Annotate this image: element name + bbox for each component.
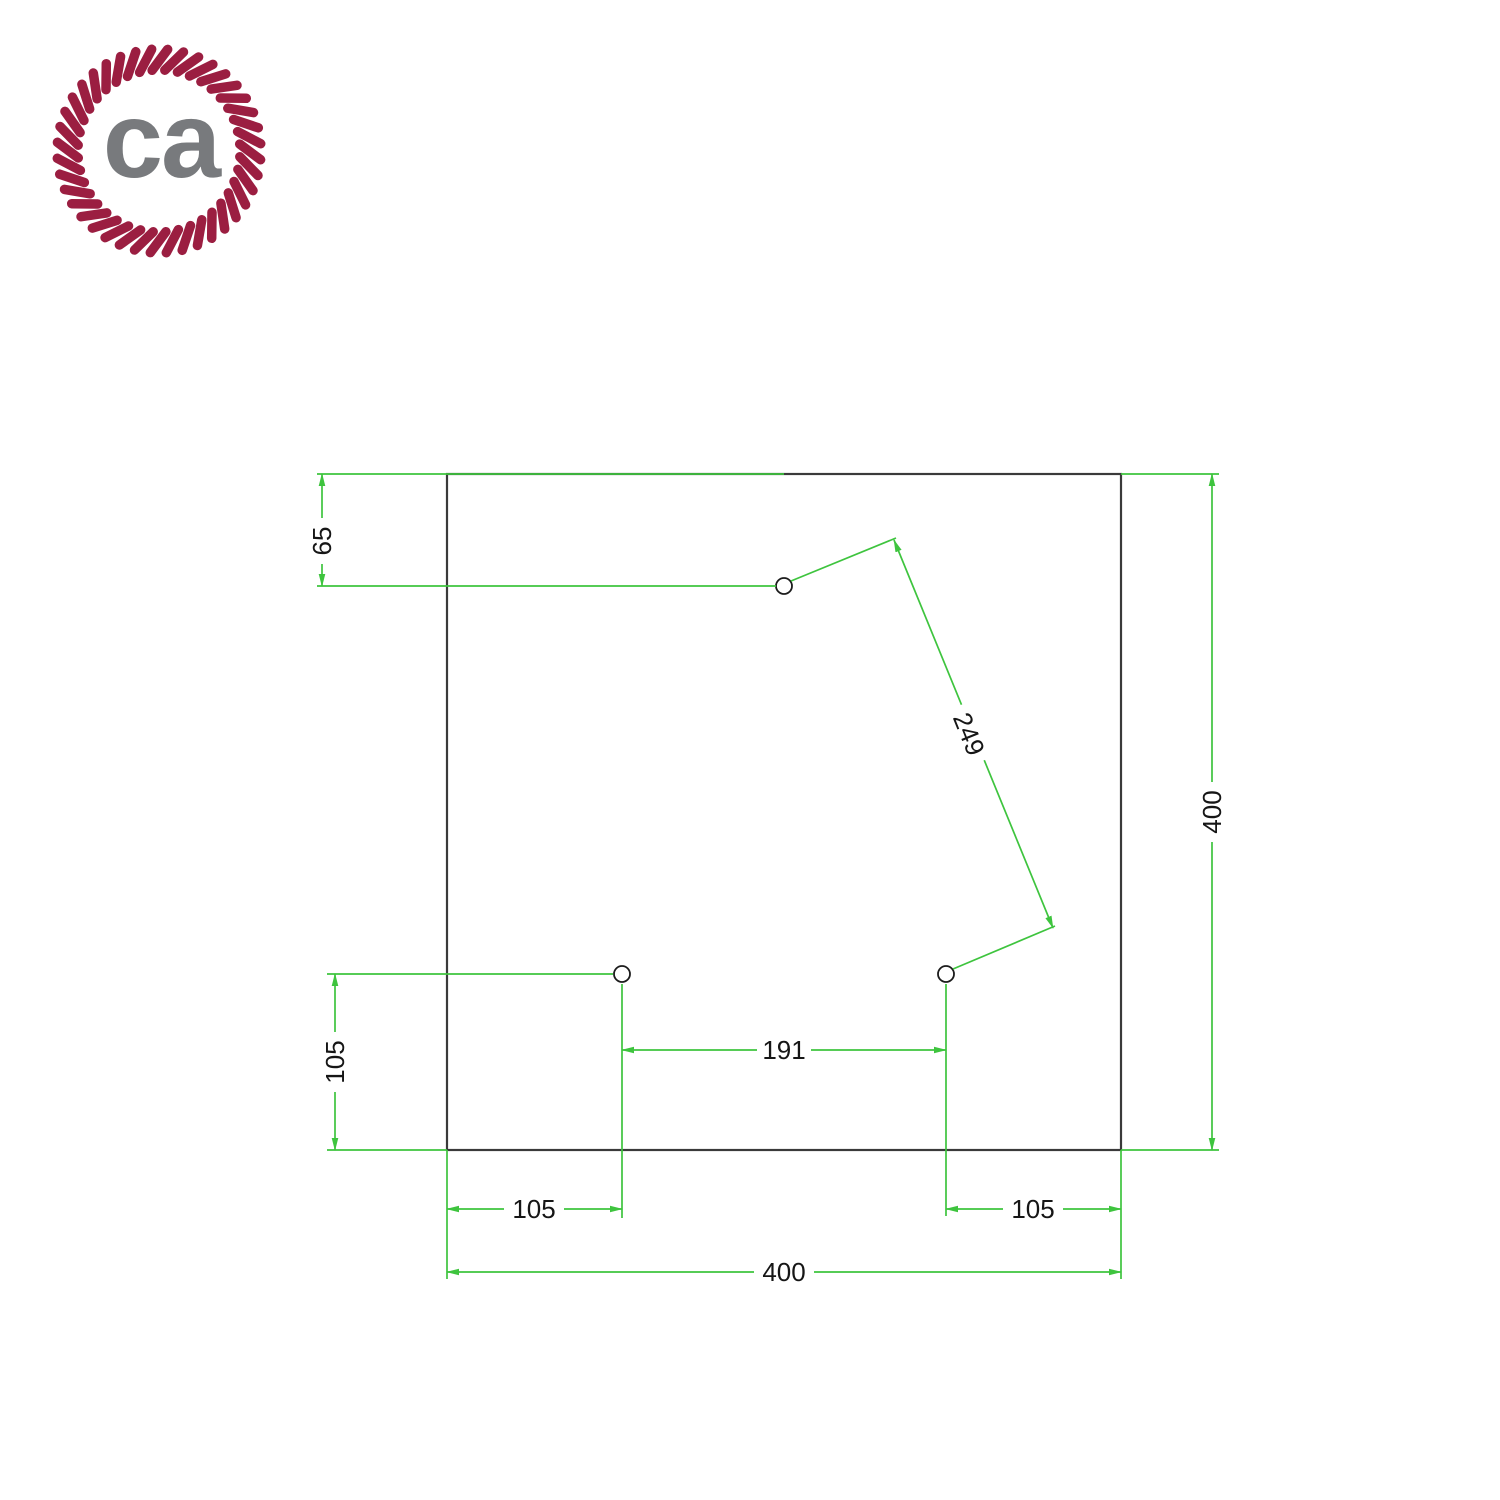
rope-strand-icon	[228, 108, 254, 112]
dimension-label: 105	[1011, 1194, 1054, 1224]
dimension-label-group: 249	[944, 701, 994, 768]
rope-strand-icon	[81, 213, 107, 217]
rope-strand-icon	[82, 84, 90, 109]
rope-strand-icon	[92, 220, 117, 228]
dimension-label: 65	[307, 527, 337, 556]
dimension-diagonal-holes: 249	[791, 538, 1055, 969]
brand-logo: ca	[57, 49, 260, 252]
extension-line	[791, 538, 896, 581]
rope-strand-icon	[128, 52, 136, 77]
mounting-hole-top	[776, 578, 792, 594]
dimension-top-hole-offset: 65	[307, 474, 784, 586]
dimension-label-group: 105	[320, 1032, 350, 1092]
rope-strand-icon	[221, 203, 225, 229]
rope-strand-icon	[182, 226, 190, 251]
product-drawing-canvas: ca 65 400	[0, 0, 1500, 1500]
dimension-right-hole-horizontal: 105	[946, 1150, 1121, 1279]
dimension-label-group: 105	[1003, 1194, 1063, 1224]
rope-strand-icon	[197, 220, 201, 246]
mounting-hole-bottom-left	[614, 966, 630, 982]
dimension-label: 105	[512, 1194, 555, 1224]
logo-text: ca	[103, 79, 222, 200]
dimension-label-group: 400	[754, 1257, 814, 1287]
rope-strand-icon	[65, 189, 91, 193]
dimension-label: 191	[762, 1035, 805, 1065]
dimension-label-group: 191	[757, 1035, 811, 1065]
mounting-hole-bottom-right	[938, 966, 954, 982]
dimension-plate-height: 400	[1121, 474, 1227, 1150]
dimension-label-group: 400	[1197, 782, 1227, 842]
dimension-left-hole-vertical: 105	[320, 974, 613, 1150]
dimension-label: 400	[762, 1257, 805, 1287]
technical-drawing: ca 65 400	[0, 0, 1500, 1500]
rope-strand-icon	[93, 73, 97, 99]
dimension-plate-width: 400	[447, 1257, 1121, 1287]
rope-strand-icon	[228, 193, 236, 218]
dimension-label-group: 65	[307, 518, 337, 564]
dimension-label-group: 105	[504, 1194, 564, 1224]
extension-line	[953, 926, 1055, 969]
dimension-label: 400	[1197, 790, 1227, 833]
rope-strand-icon	[234, 120, 259, 128]
dimension-left-hole-horizontal: 105	[447, 984, 622, 1279]
dimension-holes-distance: 191	[622, 984, 946, 1216]
rope-strand-icon	[60, 174, 85, 182]
dimension-label: 105	[320, 1040, 350, 1083]
